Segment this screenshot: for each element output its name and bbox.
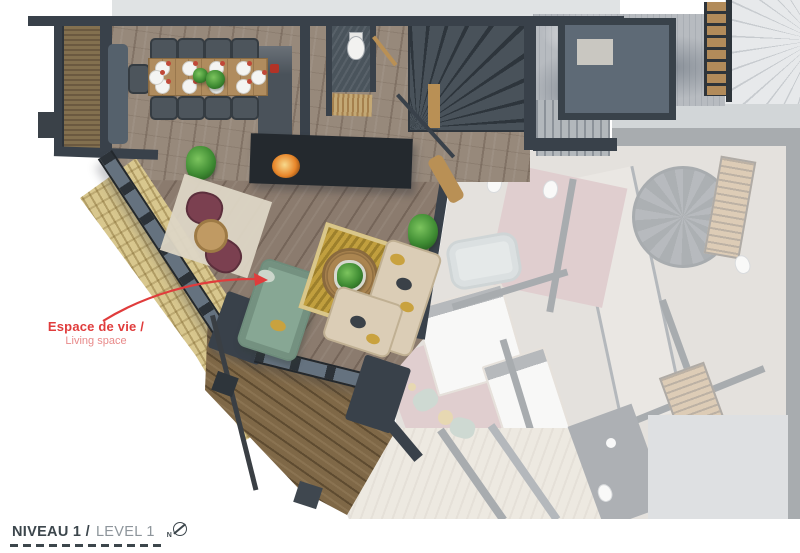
level-legend: NIVEAU 1 / LEVEL 1 N [12,524,187,540]
level-label-en: LEVEL 1 [96,524,155,540]
annotation-label-fr: Espace de vie / [34,319,158,334]
legend-dashed-rule [10,544,164,547]
compass-north-label: N [167,532,172,539]
floor-plan: Espace de vie / Living space NIVEAU 1 / … [0,0,800,553]
annotation-label-en: Living space [34,335,158,347]
compass-icon: N [167,525,187,539]
compass-circle-icon [173,522,187,536]
annotation-arrow [0,0,800,553]
level-label-fr: NIVEAU 1 / [12,524,90,540]
